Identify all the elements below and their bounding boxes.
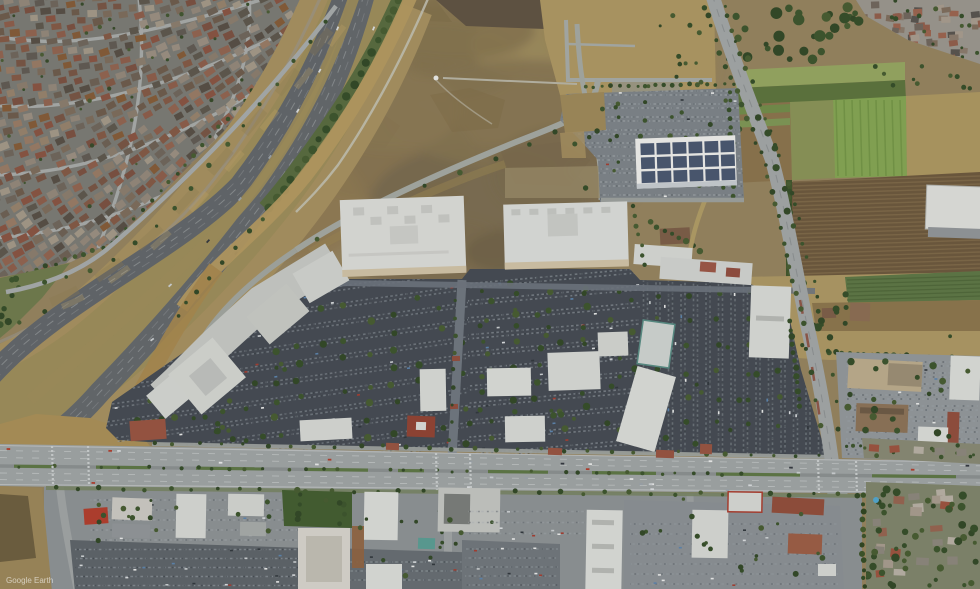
svg-text:Google Earth: Google Earth (6, 576, 53, 585)
